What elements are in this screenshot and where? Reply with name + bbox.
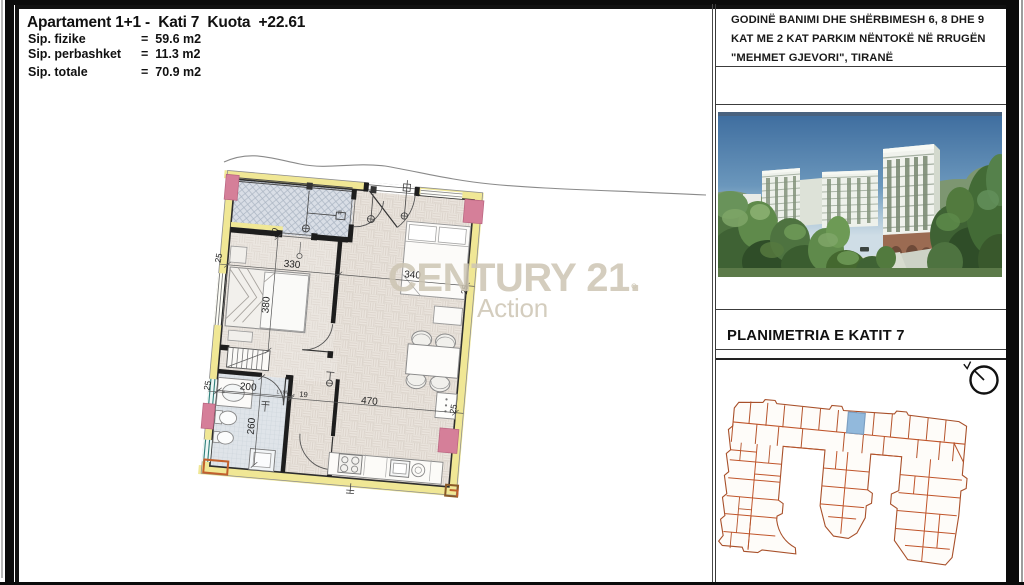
svg-text:330: 330: [283, 259, 301, 271]
svg-text:200: 200: [239, 381, 257, 393]
svg-text:25: 25: [213, 252, 225, 263]
svg-text:25: 25: [202, 380, 214, 391]
svg-text:260: 260: [246, 417, 258, 435]
svg-text:L+fA: L+fA: [276, 390, 288, 397]
svg-text:380: 380: [260, 296, 272, 314]
svg-text:Action: Action: [477, 293, 548, 323]
svg-text:19: 19: [299, 390, 308, 400]
svg-text:470: 470: [361, 395, 379, 407]
svg-text:25: 25: [447, 403, 459, 414]
